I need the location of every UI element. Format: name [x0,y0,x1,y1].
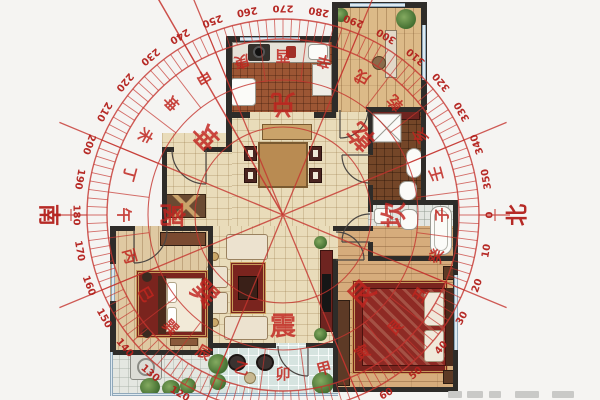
wall [226,112,250,118]
wall [204,147,232,152]
wall [314,112,336,118]
degree-label: 340 [469,132,486,155]
wall [208,226,213,355]
watermark-block [489,391,501,398]
bath-toilet [399,181,417,201]
sofa [224,316,268,340]
pillow [424,292,444,326]
wall [333,226,373,231]
degree-label: 190 [72,168,86,191]
mountain-label: 壬 [426,164,447,183]
dining-chair [309,168,322,183]
fengshui-floorplan-image: 0102030405060708090100110120130140150160… [0,0,600,400]
dining-chair [309,146,322,161]
degree-label: 170 [72,240,86,263]
balcony-plant [210,374,226,390]
wall [110,301,116,355]
pillow [167,307,177,327]
pillow [424,330,444,362]
wall [110,226,116,264]
kitchen-sink [308,44,328,60]
balcony-table [244,372,256,384]
watermark [0,390,600,400]
degree-label: 220 [113,70,135,93]
bath-sink [374,208,391,224]
dresser [160,232,206,246]
degree-label: 270 [273,3,294,14]
degree-label: 180 [71,205,82,226]
tv [322,274,331,312]
wall [368,200,458,205]
watermark-block [448,391,462,398]
wall [166,226,213,231]
degree-label: 160 [80,274,97,297]
wall [368,256,458,261]
window [422,25,426,80]
pillow [167,282,177,303]
degree-label: 330 [452,100,472,124]
wall [333,259,338,392]
mountain-label: 申 [192,66,214,89]
dining-table [258,142,308,188]
balcony-chair [228,354,246,371]
study-chair [372,56,386,70]
degree-label: 0 [485,211,496,218]
plant [314,236,327,249]
bath-sink [406,148,422,178]
watermark-block [467,391,483,398]
wall [208,343,276,348]
headboard [158,276,166,334]
kitchen-pan [253,46,265,58]
balcony-plant [208,354,228,374]
study-plant [396,9,416,29]
wall [368,185,373,212]
degree-label: 350 [480,168,494,191]
window [240,37,300,41]
bedside-lamp [142,272,152,282]
window [454,275,458,350]
kitchen-kettle [286,46,296,58]
sofa [226,234,268,260]
mountain-label: 午 [115,207,133,222]
wardrobe [337,300,350,386]
wall [226,112,232,152]
degree-label: 210 [94,100,114,124]
wall [368,242,373,256]
wall [421,107,426,205]
study-desk [385,30,397,78]
wall [162,147,167,231]
degree-label: 230 [138,46,161,68]
watermark-block [552,391,574,398]
bathtub [430,206,452,255]
bed-bench [170,338,198,346]
wall [368,112,373,155]
window [350,3,405,7]
degree-label: 320 [431,70,453,93]
wall [226,36,232,118]
window [111,264,115,301]
entry-console [166,194,206,218]
watermark-block [515,391,539,398]
degree-label: 240 [168,26,192,46]
kitchen-cabinet [312,64,332,96]
degree-label: 10 [480,243,493,259]
mountain-label: 未 [133,124,157,148]
dining-sideboard [262,124,312,140]
mountain-label: 坤 [159,91,182,114]
bedside-lamp [142,328,152,338]
coffee-table [238,276,258,300]
cardinal-north-label: 北 [506,204,531,226]
degree-label: 250 [200,12,223,29]
dining-chair [244,168,257,183]
bath-toilet [400,209,418,230]
balcony-chair [256,354,274,371]
plant [314,328,327,341]
wall [366,107,424,112]
wall [332,2,338,112]
degree-label: 20 [470,277,485,294]
kitchen-fridge [230,78,256,106]
degree-label: 260 [236,4,259,18]
washing-machine [130,352,162,380]
mountain-label: 丁 [119,164,140,183]
wall [306,343,338,348]
wall [110,350,213,355]
headboard [446,288,453,366]
cardinal-south-label: 南 [36,204,61,226]
dining-chair [244,146,257,161]
degree-label: 280 [308,4,331,18]
degree-label: 200 [80,133,97,156]
